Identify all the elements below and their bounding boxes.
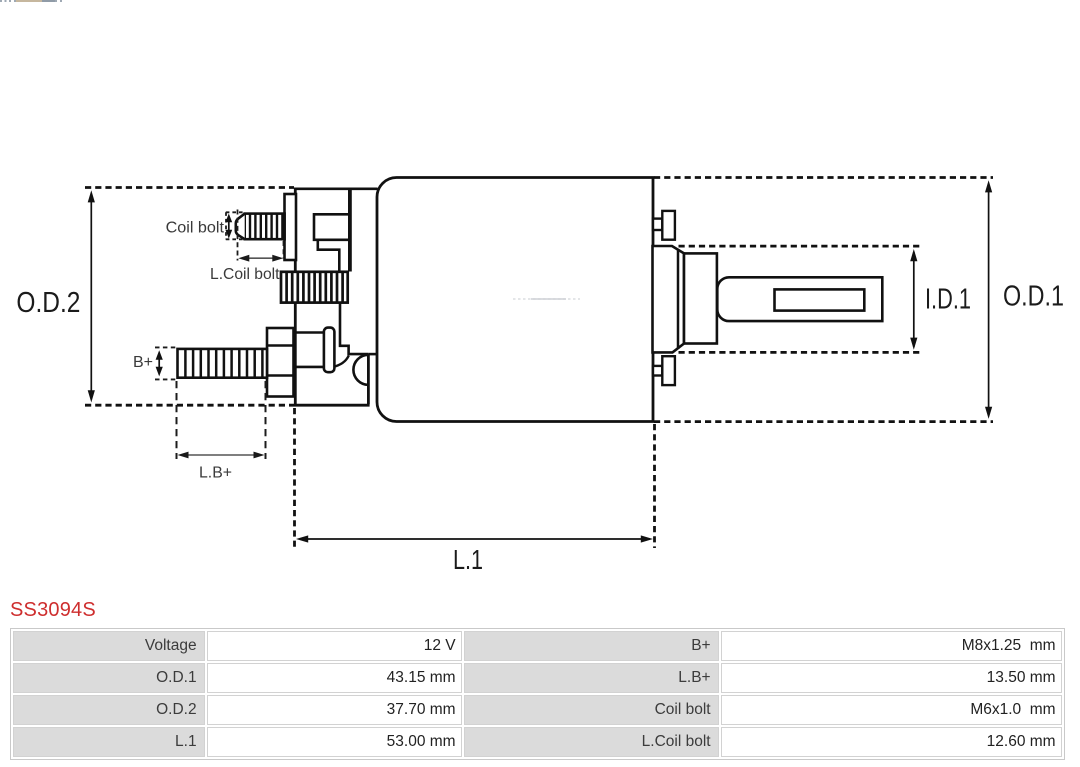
svg-text:Coil bolt: Coil bolt: [166, 220, 225, 237]
svg-text:B+: B+: [133, 354, 153, 371]
svg-text:L.1: L.1: [453, 544, 483, 575]
svg-text:O.D.1: O.D.1: [1003, 281, 1064, 313]
svg-text:L.Coil bolt: L.Coil bolt: [210, 266, 280, 283]
svg-text:I.D.1: I.D.1: [925, 284, 971, 316]
svg-text:L.B+: L.B+: [199, 465, 232, 482]
svg-text:O.D.2: O.D.2: [16, 287, 80, 319]
